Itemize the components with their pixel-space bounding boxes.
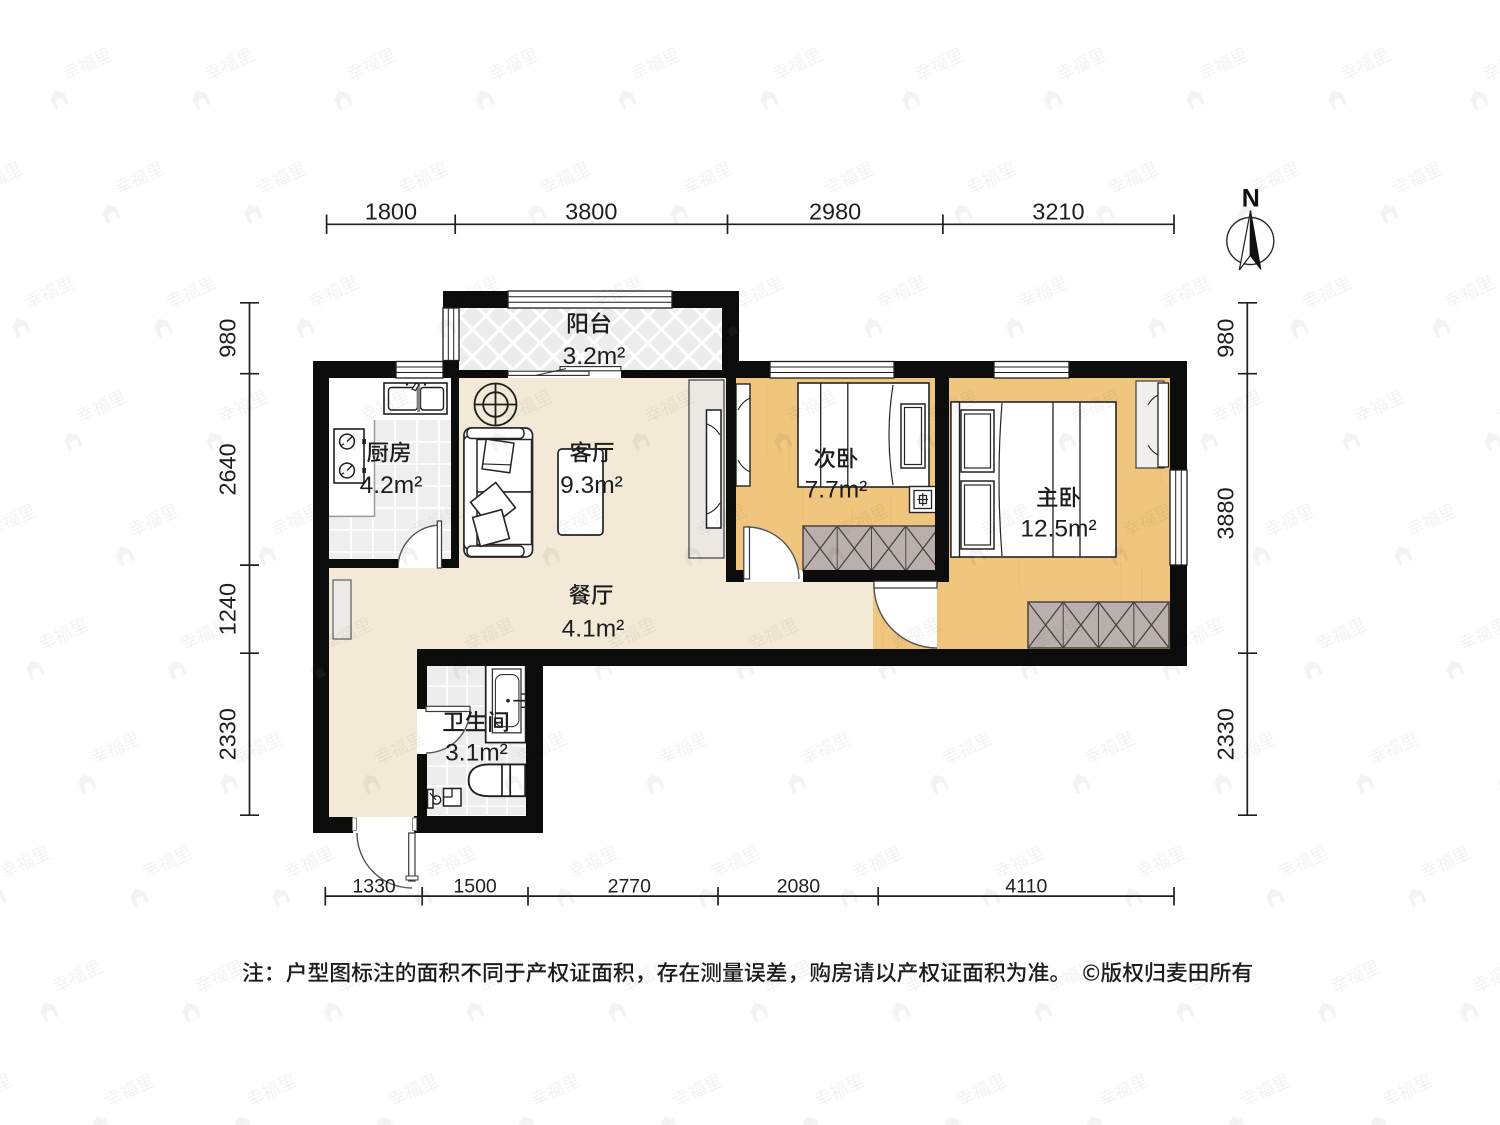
svg-text:12.5m²: 12.5m² <box>1020 516 1096 543</box>
svg-text:3800: 3800 <box>565 199 617 225</box>
svg-text:3210: 3210 <box>1032 199 1084 225</box>
svg-text:1330: 1330 <box>352 876 396 898</box>
svg-text:980: 980 <box>1213 319 1239 358</box>
svg-text:3.1m²: 3.1m² <box>445 740 508 767</box>
svg-text:3.2m²: 3.2m² <box>563 343 626 370</box>
svg-text:2640: 2640 <box>215 443 241 495</box>
svg-text:4.2m²: 4.2m² <box>360 472 423 499</box>
svg-text:1500: 1500 <box>453 876 497 898</box>
svg-text:4110: 4110 <box>1005 876 1047 898</box>
svg-text:2080: 2080 <box>777 876 821 898</box>
svg-text:2330: 2330 <box>215 708 241 760</box>
svg-text:2770: 2770 <box>608 876 652 898</box>
svg-text:980: 980 <box>215 319 241 358</box>
svg-text:3880: 3880 <box>1213 487 1239 539</box>
svg-text:9.3m²: 9.3m² <box>560 472 623 499</box>
svg-text:7.7m²: 7.7m² <box>805 477 868 504</box>
